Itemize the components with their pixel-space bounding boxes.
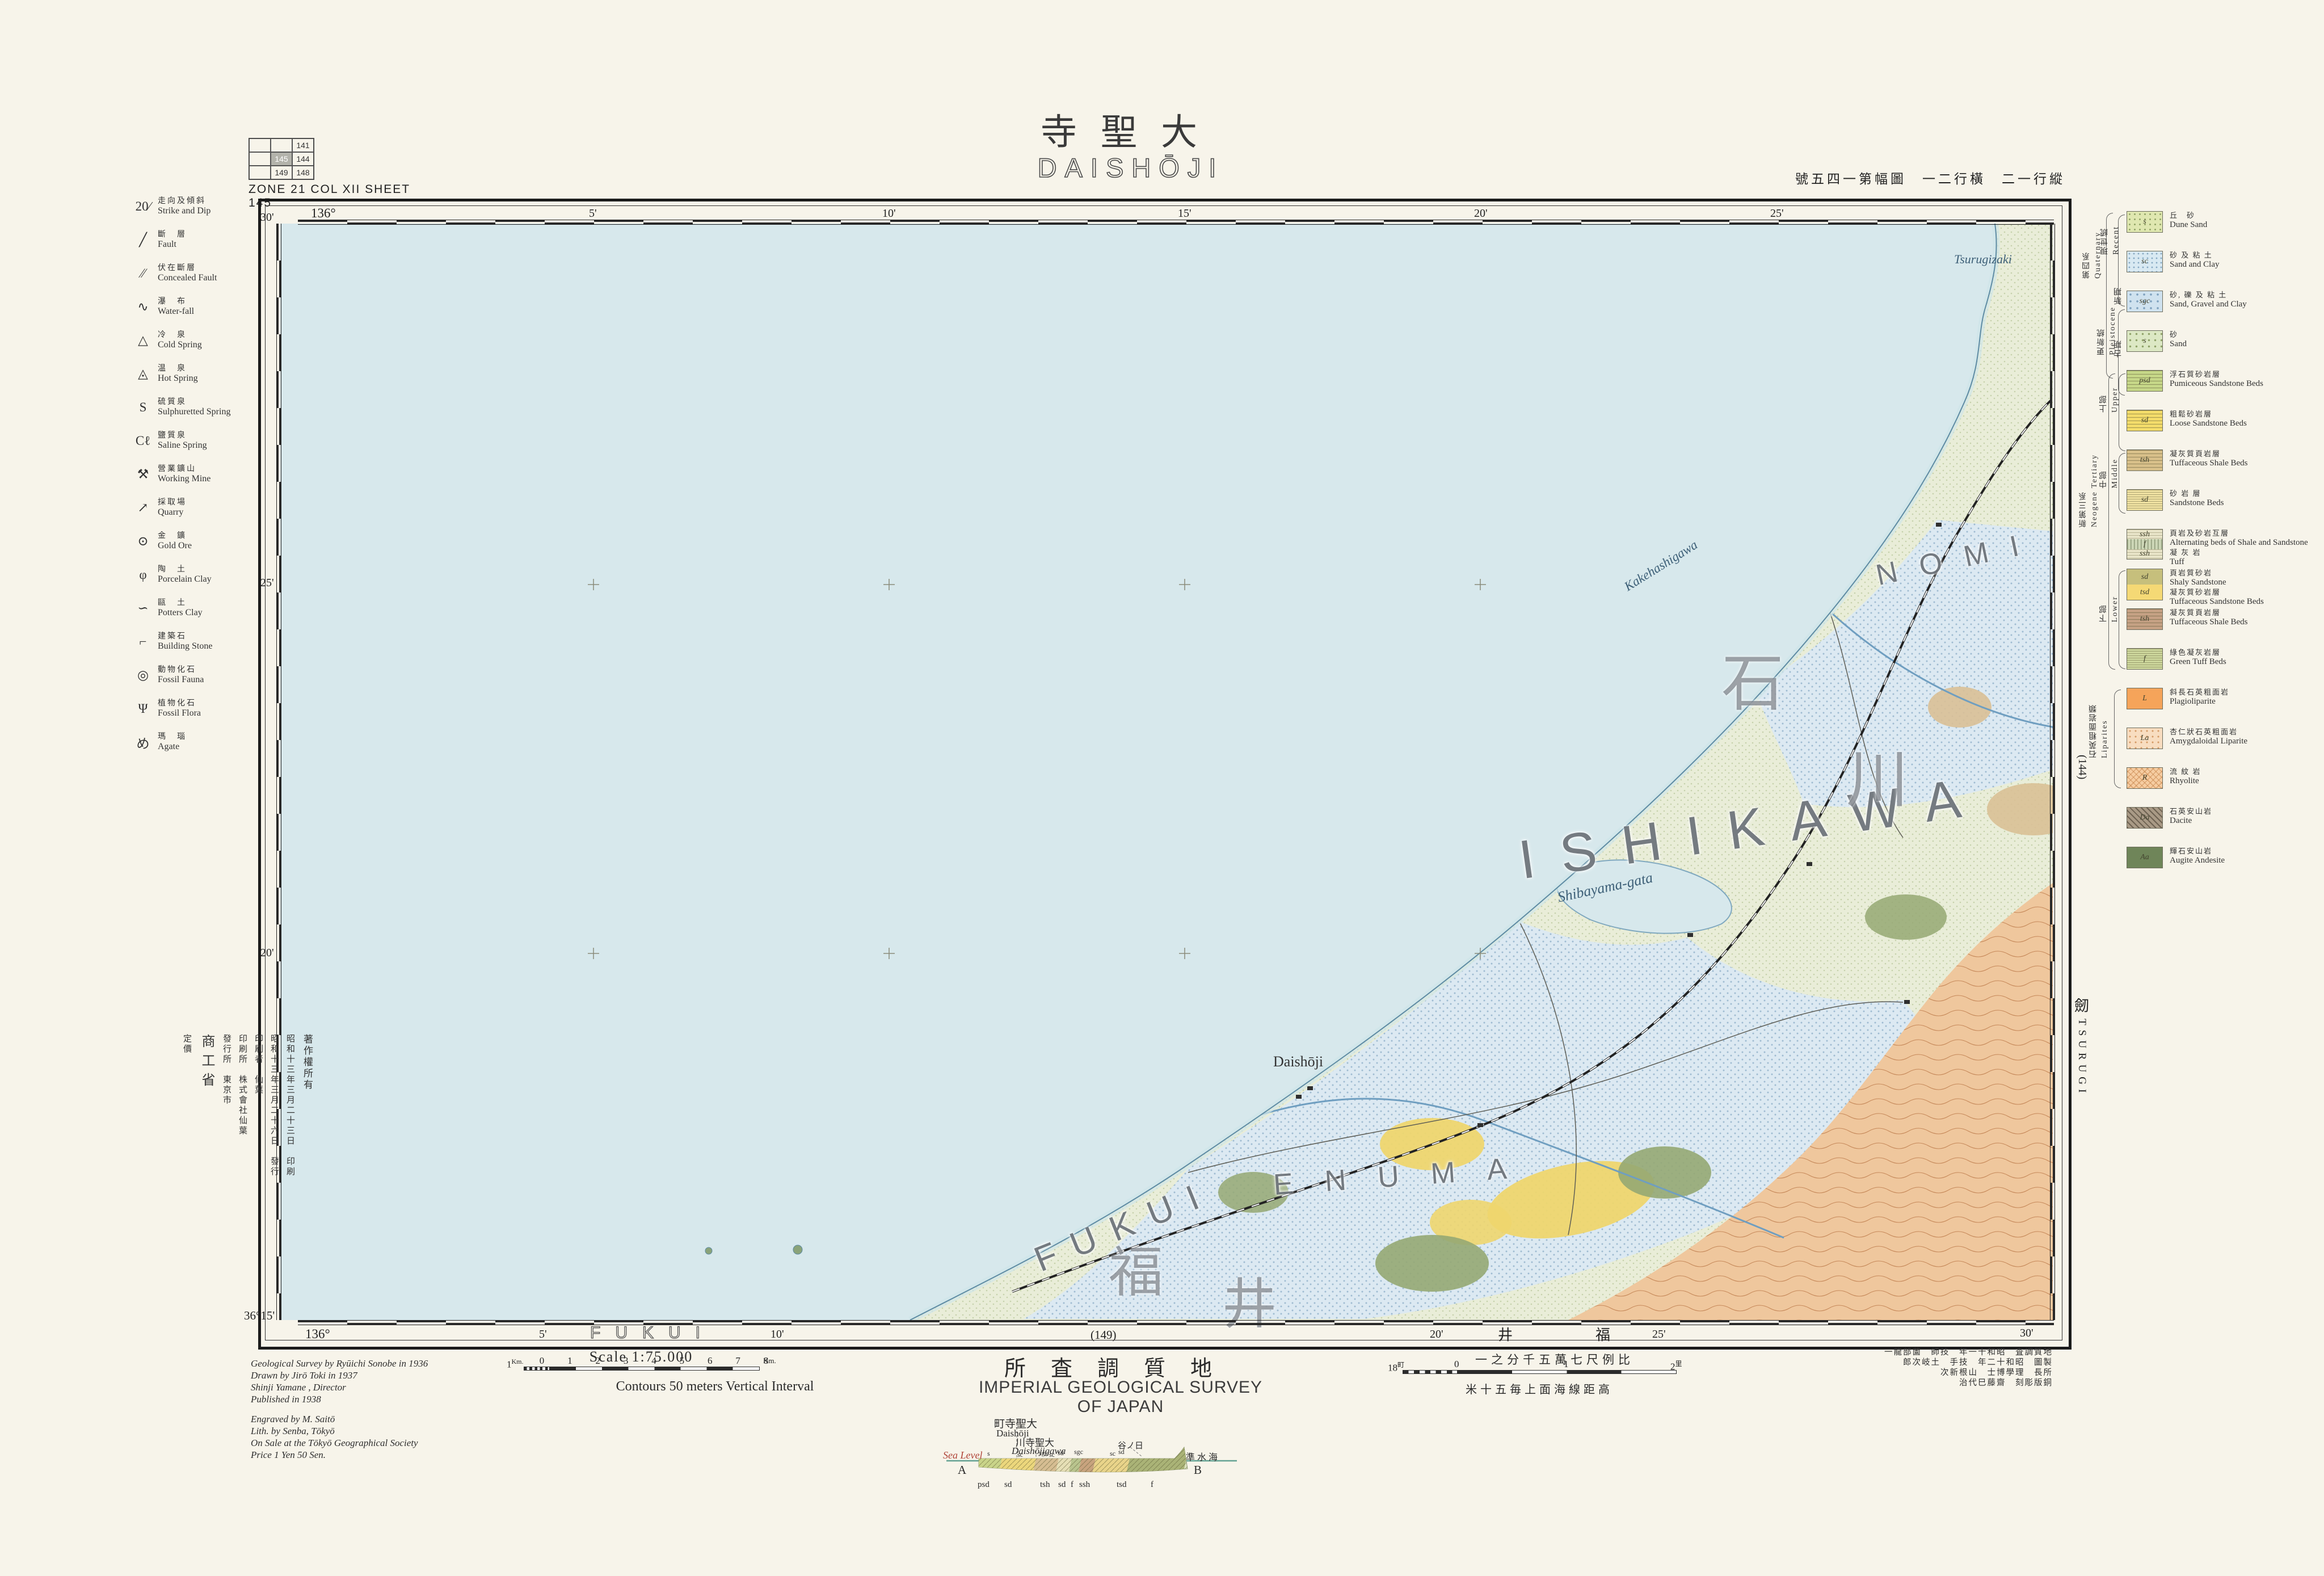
scale-jp: 一之分千五萬七尺例比: [1441, 1351, 1668, 1368]
symbol-label-jp: 動物化石: [158, 666, 204, 675]
symbol-label-en: Cold Spring: [158, 340, 202, 350]
unit-code: R: [2127, 768, 2162, 788]
symbol-legend-row: ∽ 甌 土 Potters Clay: [128, 591, 270, 625]
km-tick: 7: [732, 1355, 744, 1367]
symbol-icon: φ: [128, 568, 158, 582]
geologic-unit-chip: tsh: [2127, 608, 2163, 630]
group-lower-en: Lower: [2111, 596, 2120, 623]
symbol-label-jp: 甌 土: [158, 599, 203, 608]
unit-label-jp: 砂 及 粘 土: [2170, 251, 2220, 260]
symbol-icon: 20∕: [128, 199, 158, 214]
tick-left-3615: 36°15': [244, 1309, 275, 1323]
sec-bottom-unit: f: [1151, 1480, 1153, 1490]
unit-label-jp: 凝灰質頁岩層: [2170, 449, 2248, 459]
unit-code: L: [2127, 688, 2162, 709]
unit-code: f: [2127, 649, 2162, 669]
unit-label-jp: 綠色凝灰岩層: [2170, 648, 2226, 657]
symbol-label-en: Potters Clay: [158, 608, 203, 618]
unit-code: Da: [2127, 808, 2162, 828]
unit-code-3: ssh: [2127, 549, 2162, 559]
geologic-unit-chip: tsh: [2127, 449, 2163, 471]
group-recent-jp: 現世統: [2099, 226, 2111, 255]
sec-top-unit: sd: [1058, 1449, 1064, 1457]
sec-top-unit: s: [987, 1449, 990, 1458]
sec-top-unit: sgc: [1074, 1448, 1083, 1456]
label-fukui-kanji-bottom: 井 福: [1498, 1323, 1644, 1344]
geologic-legend-row: L 斜長石英粗面岩 Plagioliparite: [2127, 688, 2314, 728]
contours-label: Contours 50 meters Vertical Interval: [590, 1379, 840, 1394]
unit-label-en: Tuffaceous Shale Beds: [2170, 617, 2248, 627]
unit-label-en: Alternating beds of Shale and Sandstone: [2170, 538, 2308, 548]
geologic-unit-chip: f: [2127, 648, 2163, 670]
sec-bottom-unit: psd: [978, 1480, 990, 1490]
unit-label-en: Green Tuff Beds: [2170, 657, 2226, 667]
unit-label-en2: Tuff: [2170, 557, 2308, 567]
geologic-unit-chip: R: [2127, 767, 2163, 789]
symbol-label-jp: 硫質泉: [158, 398, 230, 407]
group-liparites-en: Liparites: [2100, 704, 2110, 758]
colophon-line: 商工省: [197, 1034, 217, 1295]
geologic-legend-row: psd 浮石質砂岩層 Pumiceous Sandstone Beds: [2127, 370, 2314, 410]
unit-label-jp: 凝灰質頁岩層: [2170, 608, 2248, 617]
unit-label-en: Loose Sandstone Beds: [2170, 419, 2247, 428]
geologic-unit-chip: s: [2127, 211, 2163, 233]
sec-bottom-unit: sd: [1004, 1480, 1012, 1490]
geologic-unit-chip: sd: [2127, 410, 2163, 431]
unit-code-2: f: [2127, 539, 2162, 549]
symbol-legend-row: ◬ 温 泉 Hot Spring: [128, 357, 270, 390]
sheet-ref-right: (144): [2075, 755, 2089, 779]
label-ishi-kanji: 石: [1721, 632, 1784, 723]
symbol-icon: ↗: [128, 501, 158, 515]
symbol-label-jp: 瑪 瑙: [158, 733, 187, 742]
map-canvas: ISHIKAWA FUKUI ENUMA NOMI 石 川 福 井 Shibay…: [280, 224, 2053, 1320]
label-i-kanji: 井: [1222, 1260, 1277, 1339]
symbol-icon: ⁄⁄: [128, 266, 158, 281]
sheet-ref-bottom: (149): [1091, 1328, 1117, 1342]
sheet-number-note: 號五四一第幅圖 一二行橫 二一行縱: [1713, 168, 2065, 187]
km-tick: 5: [676, 1355, 688, 1367]
label-fuku-kanji: 福: [1109, 1228, 1163, 1307]
contour-jp: 米十五毎上面海線距高: [1426, 1380, 1653, 1397]
ri-bar-sub: [1403, 1370, 1458, 1374]
symbol-label-en: Quarry: [158, 507, 187, 518]
tick-top-20: 20': [1474, 207, 1488, 220]
geologic-legend-row: ssh f ssh 頁岩及砂岩互層 Alternating beds of Sh…: [2127, 529, 2314, 569]
group-middle-en: Middle: [2111, 459, 2120, 488]
geologic-legend-row: f 綠色凝灰岩層 Green Tuff Beds: [2127, 648, 2314, 688]
symbol-label-jp: 伏在斷層: [158, 264, 217, 273]
unit-label-jp: 砂, 礫 及 粘 土: [2170, 291, 2247, 300]
geologic-unit-chip: s: [2127, 330, 2163, 352]
unit-code: sd: [2127, 569, 2162, 585]
unit-label-jp: 砂: [2170, 330, 2187, 339]
index-cell: 145: [271, 152, 292, 166]
symbol-legend-row: め 瑪 瑙 Agate: [128, 725, 270, 759]
group-upper-en: Upper: [2111, 387, 2120, 413]
geologic-unit-chip: sd: [2127, 489, 2163, 511]
tick-bottom-20: 20': [1430, 1328, 1443, 1341]
group-liparites: 石英粗面岩類 Liparites: [2088, 704, 2110, 758]
symbol-label-en: Hot Spring: [158, 373, 198, 384]
chain-right: [2050, 224, 2055, 1320]
credit-line-jp: 郎次岐土 手技 年二十和昭 圖製: [1787, 1358, 2053, 1368]
geologic-legend-row: sd tsd 頁岩質砂岩 Shaly Sandstone 凝灰質砂岩層 Tuff…: [2127, 569, 2314, 608]
label-tsurugi-kanji: 劒: [2074, 994, 2089, 1015]
symbol-label-en: Porcelain Clay: [158, 574, 212, 585]
symbol-legend-row: ◎ 動物化石 Fossil Fauna: [128, 658, 270, 692]
symbol-icon: ◬: [128, 367, 158, 381]
symbol-label-en: Working Mine: [158, 474, 210, 484]
unit-code: Aa: [2127, 847, 2162, 868]
km-tick: 3: [620, 1355, 631, 1367]
sec-bottom-unit: tsh: [1040, 1480, 1050, 1490]
group-neogene-jp: 新第三系: [2078, 454, 2089, 527]
km-tick: 0: [536, 1355, 548, 1367]
index-cell: 149: [271, 166, 292, 179]
symbol-legend-row: Ψ 植物化石 Fossil Flora: [128, 692, 270, 725]
credit-line-jp: 治代巳藤齋 刻彫版銅: [1787, 1378, 2053, 1388]
geologic-unit-chip: La: [2127, 728, 2163, 749]
sec-bottom-unit: tsd: [1117, 1480, 1127, 1490]
symbol-icon: Cℓ: [128, 434, 158, 448]
unit-label-en: Amygdaloidal Liparite: [2170, 737, 2247, 746]
geologic-legend: s 丘 砂 Dune Sand sc 砂 及 粘 土 Sand and Clay: [2127, 211, 2314, 886]
geologic-legend-row: tsh 凝灰質頁岩層 Tuffaceous Shale Beds: [2127, 608, 2314, 648]
section-sea-level: Sea Level: [943, 1449, 982, 1461]
symbol-label-jp: 斷 層: [158, 230, 187, 239]
tick-top-10: 10': [882, 207, 896, 220]
index-cell: 144: [292, 152, 314, 166]
tuff-patch: [1618, 1146, 1711, 1199]
geologic-legend-row: s 砂 Sand: [2127, 330, 2314, 370]
geologic-unit-chip: L: [2127, 688, 2163, 709]
credit-line: On Sale at the Tōkyō Geographical Societ…: [251, 1437, 614, 1449]
tick-left-20: 20': [260, 947, 274, 960]
symbol-label-jp: 採取場: [158, 498, 187, 507]
tick-bottom-25: 25': [1652, 1328, 1666, 1341]
symbol-label-jp: 陶 土: [158, 565, 212, 574]
symbol-label-jp: 植物化石: [158, 699, 201, 708]
index-cell: [249, 152, 271, 166]
symbol-icon: ╱: [128, 233, 158, 247]
unit-code: sgc: [2127, 291, 2162, 312]
tick-bottom-5: 5': [539, 1328, 547, 1341]
unit-code: tsh: [2127, 450, 2162, 470]
unit-code: sd: [2127, 410, 2162, 431]
unit-label-en: Shaly Sandstone: [2170, 578, 2264, 587]
symbol-legend-row: φ 陶 土 Porcelain Clay: [128, 558, 270, 591]
symbol-legend-row: ⊙ 金 鑛 Gold Ore: [128, 524, 270, 558]
symbol-label-en: Strike and Dip: [158, 206, 210, 216]
geologic-legend-row: s 丘 砂 Dune Sand: [2127, 211, 2314, 251]
credit-line-jp: 一龍部薗 師技 年一十和昭 査調質地: [1787, 1347, 2053, 1358]
symbol-icon: △: [128, 333, 158, 348]
chain-top: [298, 220, 2054, 225]
colophon-line: 著作權所有: [300, 1034, 314, 1295]
symbol-legend-row: △ 冷 泉 Cold Spring: [128, 323, 270, 357]
symbol-label-jp: 建築石: [158, 632, 212, 641]
symbol-legend-row: 20∕ 走向及傾斜 Strike and Dip: [128, 190, 270, 223]
geologic-unit-chip: sd tsd: [2127, 569, 2163, 600]
sec-bottom-unit: sd: [1058, 1480, 1066, 1490]
symbol-label-en: Saline Spring: [158, 440, 207, 451]
symbol-icon: ⌐: [128, 634, 158, 649]
group-upper: 上部 Upper: [2098, 387, 2120, 413]
symbol-label-en: Fossil Fauna: [158, 675, 204, 685]
unit-label-jp2: 凝灰質砂岩層: [2170, 588, 2264, 597]
km-tick: 6: [704, 1355, 715, 1367]
colophon-line: 昭和十三年三月二十六日 發行: [268, 1034, 280, 1295]
group-recent: 現世統 Recent: [2099, 226, 2121, 255]
credit-line: Published in 1938: [251, 1393, 614, 1405]
geologic-unit-chip: Da: [2127, 807, 2163, 829]
island: [705, 1247, 712, 1254]
group-neogene: 新第三系 Neogene Tertiary: [2078, 454, 2099, 527]
symbol-icon: S: [128, 400, 158, 415]
colophon-line: 昭和十三年三月二十三日 印刷: [284, 1034, 296, 1295]
unit-label-jp: 粗鬆砂岩層: [2170, 410, 2247, 419]
credits-right: 一龍部薗 師技 年一十和昭 査調質地郎次岐土 手技 年二十和昭 圖製次新根山 士…: [1787, 1347, 2053, 1388]
index-cell: [249, 166, 271, 179]
credit-line: Shinji Yamane , Director: [251, 1381, 614, 1393]
tick-bottom-10: 10': [771, 1328, 784, 1341]
km-bar: [549, 1367, 760, 1371]
sheet-title-kanji: 寺聖大: [932, 103, 1329, 156]
group-lower: 下部 Lower: [2098, 596, 2120, 623]
sec-top-unit: sd: [1118, 1448, 1125, 1456]
ri-bar: [1457, 1370, 1677, 1374]
symbol-label-jp: 温 泉: [158, 364, 198, 373]
unit-code: s: [2127, 212, 2162, 232]
ri-scale-pre: 18町: [1388, 1360, 1404, 1374]
geologic-legend-row: La 杏仁狀石英粗面岩 Amygdaloidal Liparite: [2127, 728, 2314, 767]
unit-label-en2: Tuffaceous Sandstone Beds: [2170, 597, 2264, 607]
credit-line: Drawn by Jirō Toki in 1937: [251, 1369, 614, 1381]
section-end-b: B: [1194, 1463, 1202, 1477]
symbol-legend-row: ↗ 採取場 Quarry: [128, 491, 270, 524]
ri-tick-0: 0: [1454, 1359, 1459, 1370]
sec-top-unit: sgc: [1039, 1449, 1048, 1457]
symbol-icon: め: [128, 733, 158, 752]
unit-code: sd: [2127, 490, 2162, 510]
symbol-legend-row: ⚒ 營業鑛山 Working Mine: [128, 457, 270, 491]
geologic-legend-row: sd 砂 岩 層 Sandstone Beds: [2127, 489, 2314, 529]
symbol-icon: ◎: [128, 668, 158, 683]
symbol-label-jp: 鹽質泉: [158, 431, 207, 440]
ri-tick-1: 1: [1564, 1359, 1569, 1370]
symbol-legend: 20∕ 走向及傾斜 Strike and Dip ╱ 斷 層 Fault ⁄⁄ …: [128, 190, 270, 759]
unit-code-2: tsd: [2127, 585, 2162, 600]
group-upper-jp: 上部: [2098, 387, 2110, 413]
section-strata: [965, 1433, 1192, 1484]
credits-left: Geological Survey by Ryūichi Sonobe in 1…: [251, 1358, 614, 1461]
symbol-legend-row: ⁄⁄ 伏在斷層 Concealed Fault: [128, 257, 270, 290]
chain-bottom: [298, 1320, 2054, 1325]
group-older-jp: 古期: [2113, 339, 2124, 358]
credit-line-jp: 次新根山 士博學理 長所: [1787, 1368, 2053, 1378]
geologic-legend-row: R 流 紋 岩 Rhyolite: [2127, 767, 2314, 807]
group-middle-jp: 中部: [2098, 459, 2110, 488]
tick-bottom-30: 30': [2020, 1327, 2033, 1340]
credit-line: Price 1 Yen 50 Sen.: [251, 1449, 614, 1461]
symbol-legend-row: Cℓ 鹽質泉 Saline Spring: [128, 424, 270, 457]
colophon-line: 發行所 東京市: [221, 1034, 233, 1295]
unit-label-jp: 斜長石英粗面岩: [2170, 688, 2229, 697]
km-scale-post: Km.: [763, 1356, 776, 1365]
symbol-label-en: Sulphuretted Spring: [158, 407, 230, 417]
symbol-legend-row: ∿ 瀑 布 Water-fall: [128, 290, 270, 323]
unit-code: ssh: [2127, 529, 2162, 539]
symbol-label-en: Agate: [158, 742, 187, 752]
geologic-legend-row: Aa 輝石安山岩 Augite Andesite: [2127, 847, 2314, 886]
index-cell: [271, 138, 292, 152]
geologic-unit-chip: Aa: [2127, 847, 2163, 868]
brace-liparites: [2114, 690, 2121, 788]
km-bar-sub: [524, 1367, 550, 1371]
tuff-patch: [1375, 1235, 1489, 1292]
group-recent-en: Recent: [2112, 226, 2121, 255]
unit-label-jp2: 凝 灰 岩: [2170, 548, 2308, 557]
adjoining-sheet-index: 141145144149148: [249, 138, 314, 180]
unit-code: tsh: [2127, 609, 2162, 629]
geologic-unit-chip: ssh f ssh: [2127, 529, 2163, 560]
geologic-unit-chip: psd: [2127, 370, 2163, 392]
km-tick: 1: [564, 1355, 575, 1367]
geologic-unit-chip: sc: [2127, 251, 2163, 272]
colophon-line: 定價: [181, 1034, 193, 1295]
unit-code: s: [2127, 331, 2162, 351]
tick-top-lon0: 136°: [311, 206, 336, 221]
geologic-legend-row: sgc 砂, 礫 及 粘 土 Sand, Gravel and Clay: [2127, 291, 2314, 330]
group-middle: 中部 Middle: [2098, 459, 2120, 488]
unit-label-en: Dacite: [2170, 816, 2212, 826]
colophon-line: 印刷所 株式會社仙葉: [237, 1034, 249, 1295]
symbol-label-jp: 走向及傾斜: [158, 197, 210, 206]
unit-label-jp: 砂 岩 層: [2170, 489, 2224, 498]
colophon-line: 印刷者 仙葉: [252, 1034, 264, 1295]
symbol-label-jp: 瀑 布: [158, 297, 194, 306]
unit-code: psd: [2127, 371, 2162, 391]
unit-label-en: Augite Andesite: [2170, 856, 2225, 865]
index-cell: [249, 138, 271, 152]
brace-neogene: [2108, 373, 2115, 670]
symbol-icon: ⚒: [128, 467, 158, 482]
symbol-legend-row: ⌐ 建築石 Building Stone: [128, 625, 270, 658]
sec-bottom-unit: f: [1071, 1480, 1073, 1490]
symbol-icon: ∽: [128, 601, 158, 616]
km-tick: 4: [649, 1355, 660, 1367]
unit-label-en: Tuffaceous Shale Beds: [2170, 459, 2248, 468]
group-lower-jp: 下部: [2098, 596, 2110, 623]
symbol-icon: Ψ: [128, 701, 158, 716]
geologic-legend-row: sd 粗鬆砂岩層 Loose Sandstone Beds: [2127, 410, 2314, 449]
unit-label-en: Pumiceous Sandstone Beds: [2170, 379, 2263, 389]
cross-section: 町寺聖大 Daishōji 川寺聖大 Daishōjigawa 谷ノ日 Sea …: [931, 1402, 1248, 1521]
label-fukui-bottom: FUKUI: [590, 1323, 715, 1343]
tuff-patch: [1865, 894, 1947, 940]
label-daishoji-town: Daishōji: [1273, 1053, 1323, 1070]
geologic-legend-row: tsh 凝灰質頁岩層 Tuffaceous Shale Beds: [2127, 449, 2314, 489]
map-drawing: [280, 224, 2053, 1320]
tick-top-5: 5': [589, 207, 597, 220]
section-end-a: A: [958, 1463, 966, 1477]
unit-label-jp: 輝石安山岩: [2170, 847, 2225, 856]
colophon: 著作權所有昭和十三年三月二十三日 印刷昭和十三年三月二十六日 發行印刷者 仙葉印…: [177, 1034, 314, 1306]
map-sheet: 寺聖大 DAISHŌJI 141145144149148 ZONE 21 COL…: [0, 0, 2324, 1576]
credit-line: Lith. by Senba, Tōkyō: [251, 1425, 614, 1437]
unit-label-jp: 杏仁狀石英粗面岩: [2170, 728, 2247, 737]
unit-label-en: Sand: [2170, 339, 2187, 349]
sheet-title-romaji: DAISHŌJI: [904, 152, 1358, 183]
symbol-icon: ∿: [128, 300, 158, 314]
km-scale-pre: 1Km.: [507, 1358, 524, 1371]
unit-label-en: Rhyolite: [2170, 776, 2201, 786]
unit-label-en: Sand, Gravel and Clay: [2170, 300, 2247, 309]
unit-label-jp: 流 紋 岩: [2170, 767, 2201, 776]
symbol-label-en: Concealed Fault: [158, 273, 217, 283]
tick-top-15: 15': [1178, 207, 1192, 220]
symbol-legend-row: ╱ 斷 層 Fault: [128, 223, 270, 257]
symbol-label-en: Fault: [158, 239, 187, 250]
group-quaternary-jp: 第四系: [2081, 232, 2093, 279]
group-younger-jp: 新期: [2113, 287, 2124, 305]
km-tick: 2: [592, 1355, 604, 1367]
geologic-legend-row: Da 石英安山岩 Dacite: [2127, 807, 2314, 847]
geologic-unit-chip: sgc: [2127, 291, 2163, 312]
unit-label-en: Plagioliparite: [2170, 697, 2229, 707]
symbol-label-jp: 金 鑛: [158, 532, 192, 541]
symbol-legend-row: S 硫質泉 Sulphuretted Spring: [128, 390, 270, 424]
geologic-legend-row: sc 砂 及 粘 土 Sand and Clay: [2127, 251, 2314, 291]
km-scale-ticks: 012345678: [536, 1355, 772, 1367]
label-kawa-kanji: 川: [1846, 729, 1909, 819]
sec-top-unit: sc: [1049, 1451, 1055, 1459]
sec-top-unit: sc: [1017, 1451, 1023, 1459]
unit-label-jp: 石英安山岩: [2170, 807, 2212, 816]
symbol-label-en: Building Stone: [158, 641, 212, 652]
unit-code: La: [2127, 728, 2162, 749]
label-tsurugizaki: Tsurugizaki: [1954, 252, 2012, 267]
unit-label-en: Dune Sand: [2170, 220, 2207, 230]
group-pleistocene-jp: 更新統: [2096, 306, 2107, 355]
sec-bottom-unit: ssh: [1079, 1480, 1090, 1490]
survey-jp: 所査調質地: [1001, 1351, 1240, 1382]
unit-label-jp: 頁岩質砂岩: [2170, 569, 2264, 578]
unit-label-jp: 丘 砂: [2170, 211, 2207, 220]
symbol-label-en: Fossil Flora: [158, 708, 201, 718]
unit-label-en: Sand and Clay: [2170, 260, 2220, 270]
unit-label-en: Sandstone Beds: [2170, 498, 2224, 508]
sec-top-unit: sc: [1110, 1449, 1115, 1458]
credit-line: Engraved by M. Saitō: [251, 1413, 614, 1425]
unit-code: sc: [2127, 251, 2162, 272]
symbol-icon: ⊙: [128, 534, 158, 549]
group-liparites-jp: 石英粗面岩類: [2088, 704, 2099, 758]
tick-top-25: 25': [1770, 207, 1784, 220]
index-cell: 148: [292, 166, 314, 179]
label-tsurugi-romaji: TSURUGI: [2075, 1019, 2088, 1097]
symbol-label-jp: 冷 泉: [158, 331, 202, 340]
section-sea-level-jp: 準 水 海: [1186, 1449, 1218, 1463]
unit-label-jp: 頁岩及砂岩互層: [2170, 529, 2308, 538]
unit-label-jp: 浮石質砂岩層: [2170, 370, 2263, 379]
symbol-label-jp: 營業鑛山: [158, 465, 210, 474]
island: [793, 1245, 802, 1254]
index-cell: 141: [292, 138, 314, 152]
symbol-label-en: Gold Ore: [158, 541, 192, 551]
tick-bottom-lon0: 136°: [305, 1327, 330, 1342]
